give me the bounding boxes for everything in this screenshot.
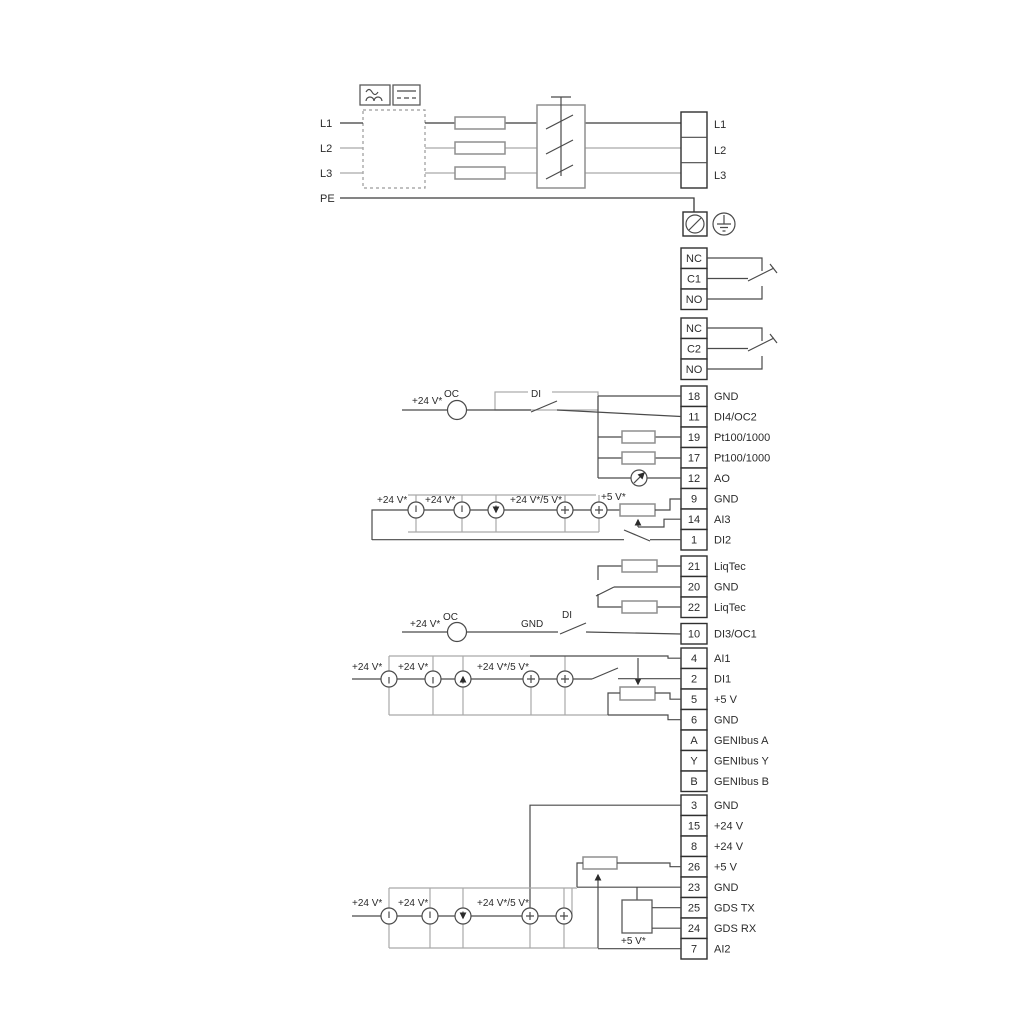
lbl-9: GND (714, 494, 739, 506)
terminal-group-2: 21 20 22 LiqTec GND LiqTec (596, 556, 746, 618)
plus24v-5v-label: +24 V*/5 V* (477, 898, 529, 909)
num-11: 11 (688, 412, 699, 424)
lbl-23: GND (714, 882, 739, 894)
num-17: 17 (688, 453, 700, 465)
liqtec-sensor-1 (622, 560, 657, 572)
di2-switch-blade (624, 530, 650, 541)
num-25: 25 (688, 903, 700, 915)
circuit-ai2-gds: +24 V* +24 V* +24 V*/5 V* +5 V* (352, 805, 681, 949)
num-19: 19 (688, 432, 700, 444)
lbl-10: DI3/OC1 (714, 629, 757, 641)
potentiometer (583, 857, 617, 869)
num-3: 3 (691, 800, 697, 812)
plus24v-label: +24 V* (352, 662, 382, 673)
lbl-26: +5 V (714, 862, 738, 874)
num-A: A (690, 735, 698, 747)
lbl-20: GND (714, 582, 739, 594)
circuit-di4-pt100-ao: +24 V* OC DI (402, 388, 681, 486)
plus24v-5v-label: +24 V*/5 V* (510, 495, 562, 506)
lbl-12: AO (714, 473, 730, 485)
lbl-18: GND (714, 391, 739, 403)
power-out-label-l2: L2 (714, 145, 726, 157)
lbl-24: GDS RX (714, 923, 757, 935)
relay2-section: NC C2 NO (681, 318, 777, 380)
num-9: 9 (691, 494, 697, 506)
terminal-group-4: 4 2 5 6 A Y B AI1 DI1 +5 V GND GENIbus A… (681, 648, 769, 792)
ai1-wire (530, 656, 681, 658)
relay2-nc: NC (686, 323, 702, 335)
num-24: 24 (688, 923, 700, 935)
fuse-l3 (455, 167, 505, 179)
num-4: 4 (691, 653, 697, 665)
wire (467, 410, 681, 417)
lbl-3: GND (714, 800, 739, 812)
num-12: 12 (688, 473, 700, 485)
wire-to-6 (608, 715, 681, 720)
plus24v-label: +24 V* (425, 495, 455, 506)
relay2-no: NO (686, 364, 703, 376)
num-14: 14 (688, 514, 700, 526)
plus24v-label: +24 V* (412, 396, 442, 407)
wire-pe (340, 198, 694, 212)
gds-sensor-box (622, 900, 652, 933)
lbl-2: DI1 (714, 674, 731, 686)
num-Y: Y (690, 756, 698, 768)
wiring-diagram: L1 L2 L3 PE L1 L2 L3 (0, 0, 1024, 1024)
di-label: DI (562, 610, 572, 621)
relay1-c1: C1 (687, 274, 701, 286)
open-collector-icon (448, 401, 467, 420)
liqtec-sensor-2 (622, 601, 657, 613)
num-23: 23 (688, 882, 700, 894)
wire (467, 632, 681, 634)
lbl-22: LiqTec (714, 602, 746, 614)
circuit-ai3: +24 V* +24 V* +24 V*/5 V* +5 V* (372, 492, 681, 541)
num-7: 7 (691, 944, 697, 956)
terminal-group-1: 18 11 19 17 12 9 14 1 GND DI4/OC2 Pt100/… (681, 386, 770, 550)
lbl-14: AI3 (714, 514, 731, 526)
terminal-group-5: 3 15 8 26 23 25 24 7 GND +24 V +24 V +5 … (681, 795, 757, 959)
num-20: 20 (688, 582, 700, 594)
lbl-Y: GENIbus Y (714, 756, 769, 768)
potentiometer (620, 687, 655, 700)
oc-label: OC (444, 389, 459, 400)
num-8: 8 (691, 841, 697, 853)
power-out-label-l1: L1 (714, 119, 726, 131)
plus24v-label: +24 V* (410, 619, 440, 630)
gnd-label: GND (521, 619, 543, 630)
relay1-nc: NC (686, 253, 702, 265)
num-B: B (690, 776, 697, 788)
plus24v-label: +24 V* (398, 898, 428, 909)
bottom-rail (389, 687, 608, 715)
lbl-6: GND (714, 715, 739, 727)
num-22: 22 (688, 602, 700, 614)
fuse-l2 (455, 142, 505, 154)
lbl-8: +24 V (714, 841, 744, 853)
lbl-7: AI2 (714, 944, 731, 956)
relay1-no: NO (686, 294, 703, 306)
fuse-l1 (455, 117, 505, 129)
power-in-label-l2: L2 (320, 143, 332, 155)
lbl-B: GENIbus B (714, 776, 769, 788)
wire-to-5 (655, 693, 681, 699)
lbl-17: Pt100/1000 (714, 453, 770, 465)
gds-tx-rx-wires (652, 908, 681, 929)
num-18: 18 (688, 391, 700, 403)
gnd23-wire (577, 887, 681, 900)
di3-switch-blade (560, 623, 586, 634)
power-in-label-l1: L1 (320, 118, 332, 130)
dc-symbol-box (393, 85, 420, 105)
wire-to-26 (617, 863, 681, 867)
num-1: 1 (691, 535, 697, 547)
num-5: 5 (691, 694, 697, 706)
lbl-21: LiqTec (714, 561, 746, 573)
liqtec-switch-blade (596, 587, 614, 596)
pt100-resistor-1 (622, 431, 655, 443)
bottom-rail (408, 518, 599, 532)
num-21: 21 (688, 561, 700, 573)
num-10: 10 (688, 629, 700, 641)
lbl-4: AI1 (714, 653, 731, 665)
num-2: 2 (691, 674, 697, 686)
num-6: 6 (691, 715, 697, 727)
lbl-19: Pt100/1000 (714, 432, 770, 444)
potentiometer (620, 504, 655, 516)
bottom-rail (389, 924, 598, 948)
power-input-section: L1 L2 L3 PE L1 L2 L3 (320, 85, 735, 236)
lbl-15: +24 V (714, 821, 744, 833)
relay1-section: NC C1 NO (681, 248, 777, 310)
num-15: 15 (688, 821, 700, 833)
wire-to-14 (638, 519, 681, 527)
power-out-block (681, 112, 707, 188)
plus24v-5v-label: +24 V*/5 V* (477, 662, 529, 673)
lbl-5: +5 V (714, 694, 738, 706)
plus24v-label: +24 V* (352, 898, 382, 909)
lbl-25: GDS TX (714, 903, 755, 915)
plus5v-label: +5 V* (621, 936, 646, 947)
power-in-label-l3: L3 (320, 168, 332, 180)
pot-left-wire (577, 863, 583, 887)
num-26: 26 (688, 862, 700, 874)
plus24v-label: +24 V* (377, 495, 407, 506)
pot-left-wire (608, 693, 620, 715)
plus24v-label: +24 V* (398, 662, 428, 673)
power-out-label-l3: L3 (714, 170, 726, 182)
oc-label: OC (443, 612, 458, 623)
power-in-label-pe: PE (320, 193, 335, 205)
circuit-ai1: +24 V* +24 V* +24 V*/5 V* (352, 656, 681, 720)
di-label: DI (531, 389, 541, 400)
wiring-diagram-page: L1 L2 L3 PE L1 L2 L3 (0, 0, 1024, 1024)
lbl-11: DI4/OC2 (714, 412, 757, 424)
plus5v-label: +5 V* (601, 492, 626, 503)
relay2-c2: C2 (687, 344, 701, 356)
filter-dashed-box (363, 110, 425, 188)
lbl-1: DI2 (714, 535, 731, 547)
lbl-A: GENIbus A (714, 735, 769, 747)
di1-switch-blade (592, 668, 618, 679)
pt100-resistor-2 (622, 452, 655, 464)
wire-to-9 (655, 499, 681, 510)
open-collector-icon (448, 623, 467, 642)
